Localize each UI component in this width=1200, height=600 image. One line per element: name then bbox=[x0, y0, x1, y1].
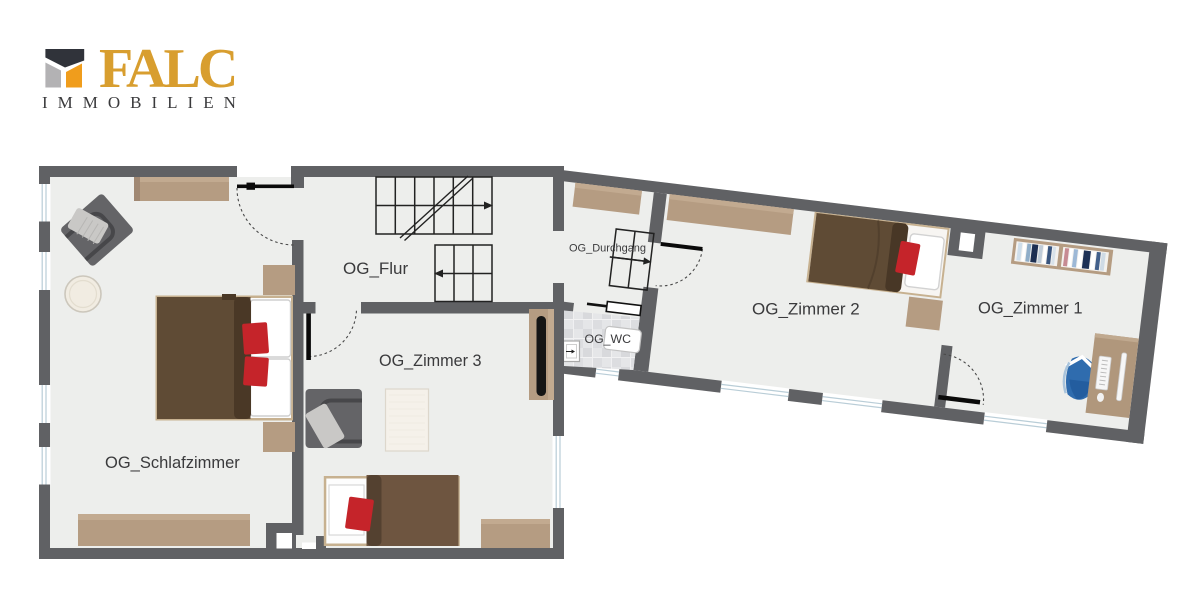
svg-text:OG_Schlafzimmer: OG_Schlafzimmer bbox=[105, 454, 240, 472]
svg-text:OG_Zimmer 1: OG_Zimmer 1 bbox=[978, 300, 1083, 318]
svg-text:OG_WC: OG_WC bbox=[585, 332, 632, 346]
svg-text:OG_Flur: OG_Flur bbox=[343, 259, 409, 278]
svg-text:OG_Zimmer 2: OG_Zimmer 2 bbox=[752, 300, 860, 319]
svg-text:OG_Zimmer 3: OG_Zimmer 3 bbox=[379, 352, 482, 370]
svg-text:OG_Durchgang: OG_Durchgang bbox=[569, 243, 646, 255]
svg-text:FALC: FALC bbox=[99, 38, 235, 100]
svg-text:IMMOBILIEN: IMMOBILIEN bbox=[42, 93, 246, 112]
